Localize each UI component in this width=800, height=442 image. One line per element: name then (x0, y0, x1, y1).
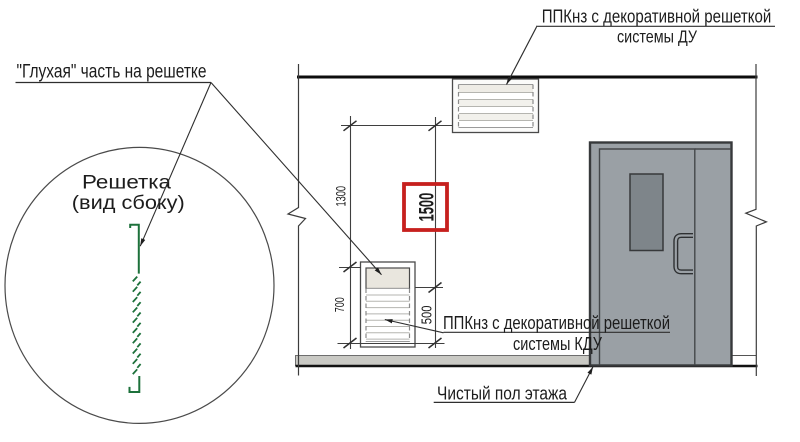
svg-text:системы КДУ: системы КДУ (513, 334, 602, 354)
svg-text:системы ДУ: системы ДУ (617, 27, 698, 47)
svg-text:ППКнз с декоративной решеткой: ППКнз с декоративной решеткой (443, 313, 670, 333)
svg-text:Чистый пол этажа: Чистый пол этажа (437, 384, 568, 404)
svg-text:1300: 1300 (333, 186, 349, 207)
svg-text:"Глухая" часть на решетке: "Глухая" часть на решетке (17, 62, 207, 83)
svg-text:ППКнз с декоративной решеткой: ППКнз с декоративной решеткой (542, 7, 772, 27)
svg-text:1500: 1500 (415, 193, 438, 222)
svg-text:500: 500 (419, 306, 436, 325)
svg-text:700: 700 (332, 297, 347, 312)
svg-text:Решетка: Решетка (82, 173, 171, 194)
svg-text:(вид сбоку): (вид сбоку) (72, 193, 185, 214)
